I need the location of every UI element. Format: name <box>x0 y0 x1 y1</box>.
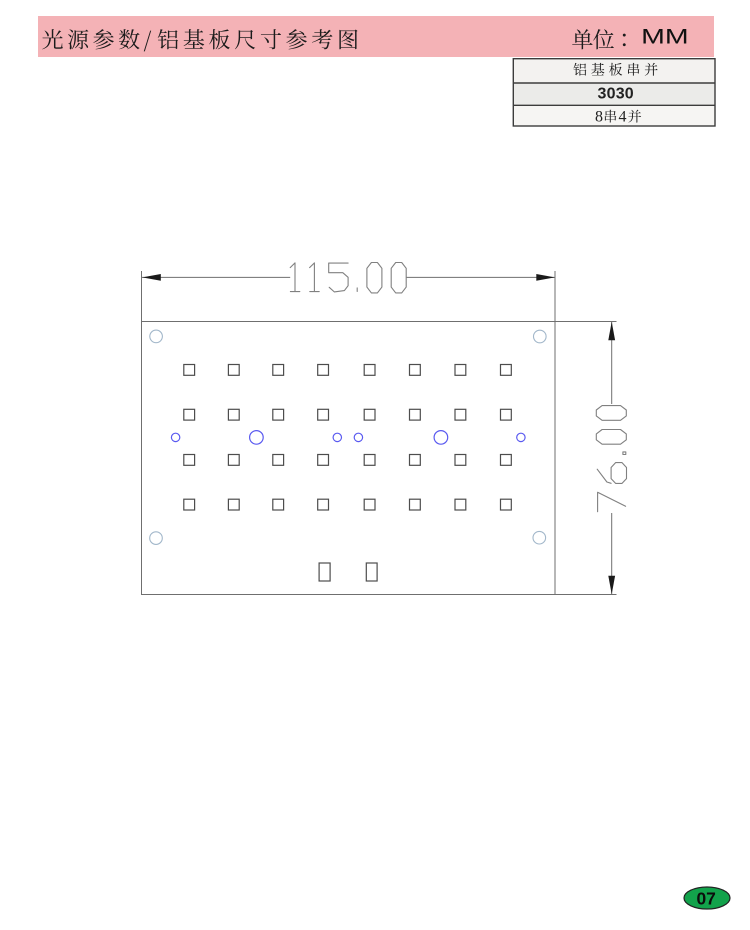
svg-text:4: 4 <box>619 109 627 126</box>
svg-text:3030: 3030 <box>598 86 634 103</box>
svg-text:MM: MM <box>641 25 689 49</box>
svg-text:07: 07 <box>697 888 716 908</box>
svg-text:8: 8 <box>595 109 603 126</box>
